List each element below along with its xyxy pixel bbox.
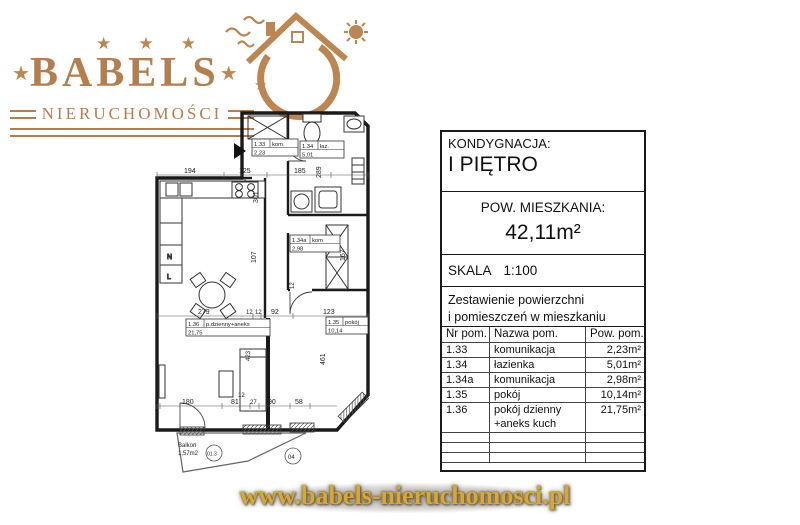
svg-text:81: 81	[231, 399, 239, 406]
svg-text:12: 12	[290, 282, 296, 289]
svg-text:107: 107	[251, 251, 258, 263]
scale-value: 1:100	[504, 263, 538, 278]
radiator-icon	[159, 365, 165, 398]
svg-text:58: 58	[295, 399, 303, 406]
apartment-area-value: 42,11m²	[448, 221, 638, 245]
cell-nr: 1.35	[442, 388, 490, 403]
svg-text:90: 90	[268, 399, 276, 406]
summary-line2: i pomieszczeń w mieszkaniu	[448, 309, 638, 326]
cell-name: pokój	[490, 388, 586, 403]
cell-area: 5,01m²	[586, 358, 644, 373]
bathroom-fixtures	[291, 114, 364, 212]
table-icon	[199, 282, 225, 308]
website-url[interactable]: www.babels-nieruchomosci.pl	[150, 481, 660, 511]
balcony-area: 1,57m2	[178, 451, 199, 457]
col-header-area: Pow. pom.	[586, 327, 644, 343]
cell-nr: 1.34	[442, 358, 490, 373]
floor-label: KONDYGNACJA:	[448, 136, 638, 151]
floor-section: KONDYGNACJA: I PIĘTRO	[442, 132, 644, 192]
svg-text:kom.: kom.	[272, 142, 285, 148]
floor-value: I PIĘTRO	[448, 153, 638, 177]
roof-window-icon	[292, 32, 303, 42]
svg-text:180: 180	[182, 399, 194, 406]
cell-nr: 1.33	[442, 343, 490, 358]
window-icon	[338, 392, 368, 422]
marker-label: 01.3	[207, 452, 217, 458]
empty-cell	[442, 433, 490, 443]
svg-text:pokój: pokój	[345, 320, 359, 326]
svg-text:2,23: 2,23	[254, 151, 265, 157]
window-icon	[180, 427, 204, 435]
empty-cell	[586, 443, 644, 453]
balcony-label: Balkon	[178, 443, 196, 449]
sun-icon	[344, 20, 368, 44]
empty-cell	[586, 433, 644, 443]
decorative-line	[10, 110, 36, 119]
toilet-tank	[303, 114, 321, 122]
empty-cell	[442, 453, 490, 463]
cell-area: 2,98m²	[586, 373, 644, 388]
cell-name: pokój dzienny +aneks kuch	[490, 403, 586, 433]
room-tag-1-34: 1.34 łaz. 5,01	[300, 141, 344, 159]
cabinet-n-label: N	[167, 254, 172, 261]
cell-area: 10,14m²	[586, 388, 644, 403]
rooms-table: Nr pom. Nazwa pom. Pow. pom. 1.33 komuni…	[442, 327, 644, 463]
svg-text:167: 167	[340, 249, 347, 261]
svg-text:461: 461	[320, 353, 327, 365]
svg-text:5,01: 5,01	[302, 153, 313, 159]
summary-title: Zestawienie powierzchni i pomieszczeń w …	[442, 287, 644, 327]
svg-text:1.34a: 1.34a	[292, 238, 307, 244]
cell-area: 2,23m²	[586, 343, 644, 358]
cell-nr: 1.34a	[442, 373, 490, 388]
apartment-area-label: POW. MIESZKANIA:	[448, 200, 638, 215]
svg-text:1.33: 1.33	[254, 142, 265, 148]
svg-text:21,75: 21,75	[188, 331, 203, 337]
room-tag-1-34a: 1.34a kom 2,98	[290, 235, 340, 253]
summary-line1: Zestawienie powierzchni	[448, 292, 638, 309]
info-panel: KONDYGNACJA: I PIĘTRO POW. MIESZKANIA: 4…	[440, 130, 646, 472]
star-icon: ★	[12, 61, 30, 86]
empty-cell	[442, 443, 490, 453]
svg-text:301: 301	[253, 191, 260, 203]
coffee-table-icon	[219, 371, 233, 397]
scale-section: SKALA 1:100	[442, 255, 644, 287]
chimney-icon	[266, 22, 275, 36]
cell-name: komunikacja	[490, 343, 586, 358]
svg-text:123: 123	[323, 309, 335, 316]
cell-area: 21,75m²	[586, 403, 644, 433]
room-tag-1-35: 1.35 pokój 10,14	[326, 317, 368, 335]
balcony: Balkon 1,57m2 01.3	[177, 433, 306, 472]
empty-cell	[586, 453, 644, 463]
empty-cell	[490, 433, 586, 443]
svg-text:12: 12	[238, 393, 245, 399]
cell-name: komunikacja	[490, 373, 586, 388]
svg-text:423: 423	[246, 350, 252, 361]
cell-nr: 1.36	[442, 403, 490, 433]
svg-text:1.35: 1.35	[328, 320, 339, 326]
svg-text:1.34: 1.34	[302, 144, 314, 150]
svg-text:łaz.: łaz.	[320, 144, 329, 150]
svg-text:185: 185	[294, 168, 306, 175]
room-tag-1-36: 1.36 p.dzienny+aneks 21,75	[186, 319, 270, 337]
svg-text:10,14: 10,14	[328, 329, 343, 335]
cell-name: łazienka	[490, 358, 586, 373]
star-icon: ★	[254, 77, 267, 94]
col-header-nr: Nr pom.	[442, 327, 490, 343]
svg-text:1.36: 1.36	[188, 322, 199, 328]
scale-label: SKALA	[448, 263, 492, 278]
svg-text:kom: kom	[312, 238, 323, 244]
chair-icon	[220, 272, 236, 287]
floor-plan-svg: N L Balkon 1,57m2 01.3 04	[140, 103, 440, 493]
window-icon	[290, 423, 314, 432]
floor-plan: N L Balkon 1,57m2 01.3 04	[140, 103, 440, 493]
kitchen-cabinets	[160, 198, 182, 283]
svg-text:92: 92	[271, 309, 279, 316]
birds-icon	[226, 17, 264, 47]
svg-text:27: 27	[250, 400, 257, 406]
svg-text:194: 194	[184, 168, 196, 175]
svg-text:p.dzienny+aneks: p.dzienny+aneks	[206, 322, 250, 328]
kitchen-fixtures: N L	[160, 181, 265, 283]
fridge-l-label: L	[167, 274, 171, 281]
empty-cell	[490, 443, 586, 453]
svg-text:125: 125	[239, 168, 251, 175]
entrance-arrow-icon	[234, 143, 246, 159]
svg-text:289: 289	[316, 166, 323, 178]
empty-cell	[490, 453, 586, 463]
col-header-name: Nazwa pom.	[490, 327, 586, 343]
svg-text:12: 12	[246, 310, 253, 316]
room-tag-1-33: 1.33 kom. 2,23	[252, 139, 298, 157]
towel-radiator-icon	[352, 158, 364, 184]
area-section: POW. MIESZKANIA: 42,11m²	[442, 192, 644, 255]
svg-text:12: 12	[255, 310, 262, 316]
marker-label: 04	[288, 455, 295, 461]
svg-text:279: 279	[198, 309, 210, 316]
brand-name: BABELS	[30, 52, 220, 94]
svg-text:2,98: 2,98	[292, 247, 303, 253]
